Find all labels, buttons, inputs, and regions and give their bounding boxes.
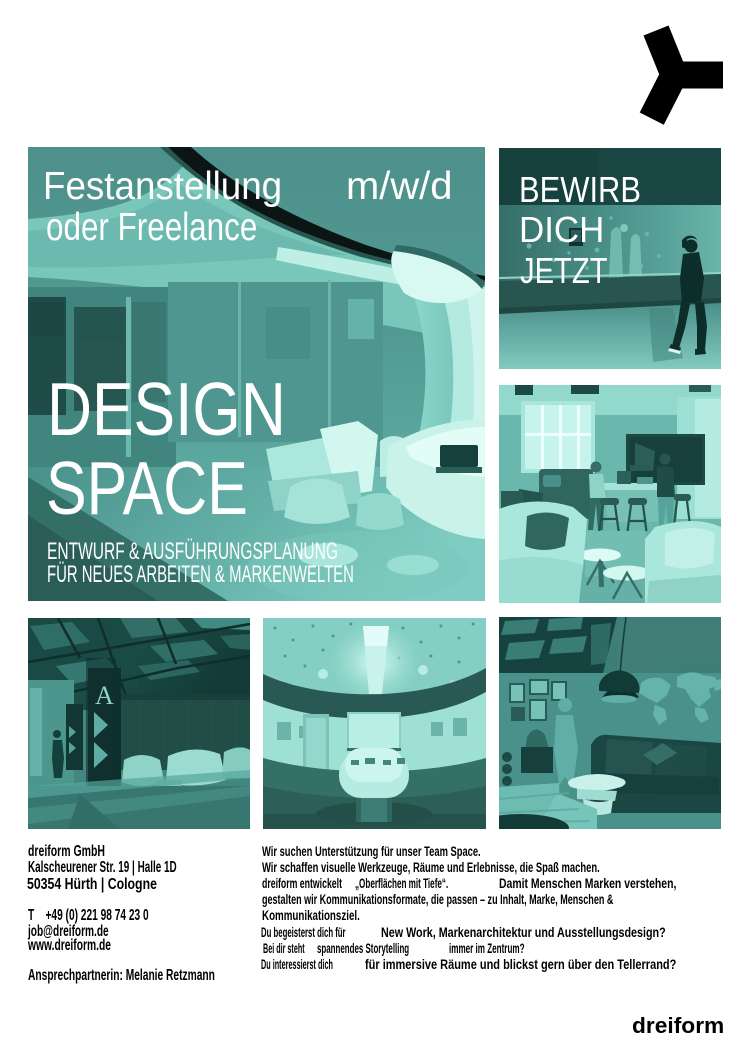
svg-text:A: A [95,681,114,710]
